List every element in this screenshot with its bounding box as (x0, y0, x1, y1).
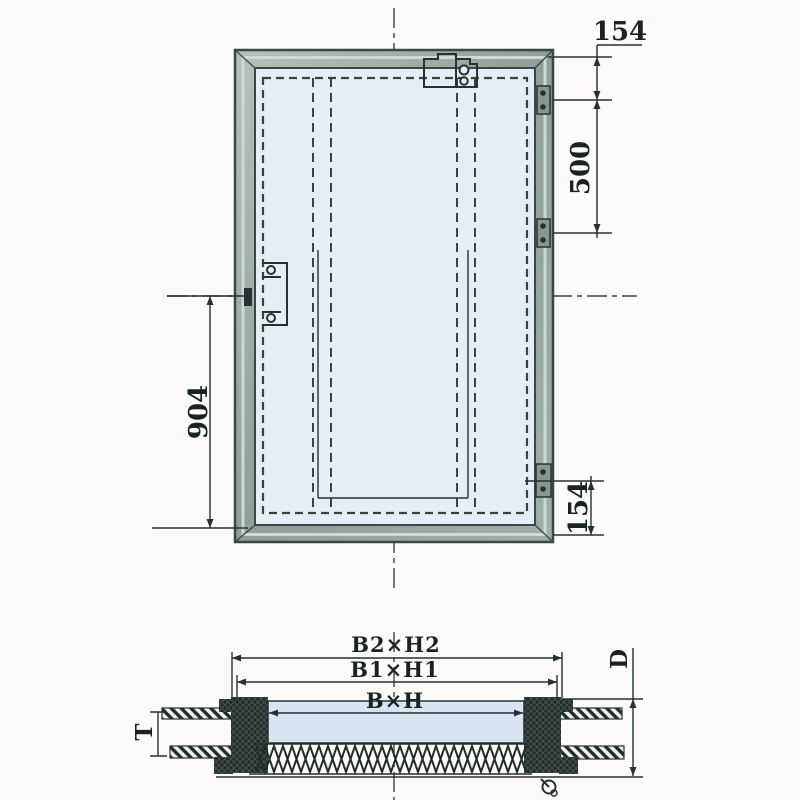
bulkhead-right (560, 708, 624, 759)
front-view: 154 500 904 154 (152, 8, 647, 588)
dimension-500-right: 500 (552, 100, 612, 233)
right-hinge-middle (537, 219, 550, 247)
section-view: B2×H2 B1×H1 B×H D (131, 632, 643, 800)
latch-bolt-bottom (460, 77, 468, 85)
dimension-154-top: 154 (548, 17, 647, 238)
frame-section-right (524, 697, 578, 774)
handle-bolt-top (267, 266, 275, 274)
handle-bolt-bottom (267, 314, 275, 322)
gasket-spring (249, 744, 532, 774)
latch-bolt-top (460, 66, 469, 75)
frame-opening (255, 68, 535, 525)
handle-pivot (244, 288, 252, 306)
dim-b1h1-label: B1×H1 (350, 657, 439, 682)
dim-b2h2-label: B2×H2 (351, 632, 440, 657)
right-hinge-top (537, 86, 550, 114)
dim-500-label: 500 (566, 141, 596, 195)
door-technical-drawing: 154 500 904 154 (0, 0, 800, 800)
dim-154-bottom-label: 154 (564, 481, 594, 535)
bulkhead-left (162, 708, 238, 758)
dim-bh-label: B×H (366, 688, 424, 713)
dim-154-top-label: 154 (593, 17, 647, 47)
door-frame (235, 50, 553, 542)
dim-d-label: D (606, 649, 633, 669)
dim-t-label: T (131, 723, 158, 740)
dim-904-label: 904 (184, 385, 214, 439)
clamp-detail (541, 779, 557, 796)
